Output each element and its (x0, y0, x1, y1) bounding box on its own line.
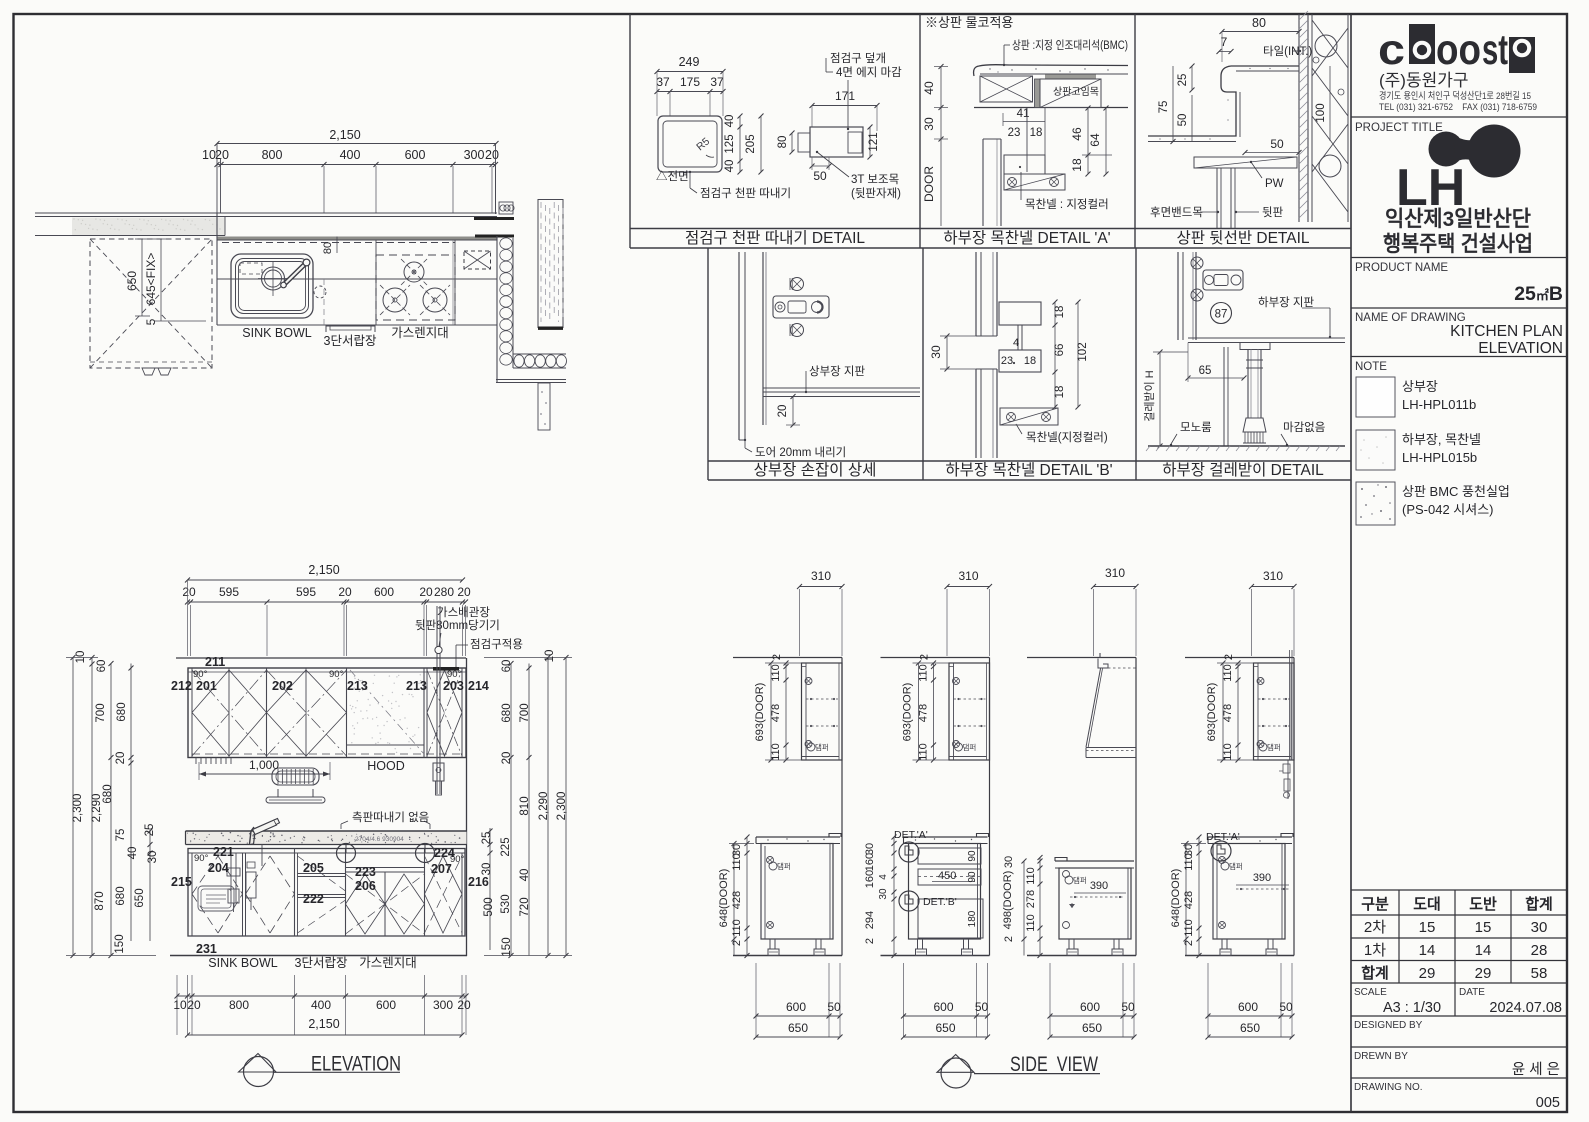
svg-text:110: 110 (770, 743, 782, 761)
svg-text:하부장 목찬넬 DETAIL 'B': 하부장 목찬넬 DETAIL 'B' (945, 461, 1112, 479)
svg-text:29: 29 (1419, 965, 1436, 982)
svg-text:700: 700 (519, 703, 531, 722)
svg-text:40: 40 (724, 115, 736, 128)
svg-text:680: 680 (102, 784, 114, 803)
svg-text:30: 30 (922, 117, 936, 131)
svg-text:7: 7 (1221, 35, 1228, 49)
svg-text:80: 80 (322, 242, 334, 254)
svg-text:2: 2 (919, 654, 931, 660)
svg-text:댐퍼: 댐퍼 (777, 861, 791, 871)
svg-text:700: 700 (95, 703, 107, 722)
svg-text:상판 BMC 풍천실업: 상판 BMC 풍천실업 (1402, 484, 1510, 499)
svg-text:50: 50 (813, 169, 827, 183)
svg-text:41: 41 (1017, 108, 1030, 120)
svg-text:14: 14 (1419, 942, 1436, 959)
svg-text:KITCHEN PLAN: KITCHEN PLAN (1450, 323, 1563, 340)
svg-text:걸레받이 H: 걸레받이 H (1143, 370, 1156, 422)
svg-text:LH-HPL015b: LH-HPL015b (1402, 450, 1477, 465)
svg-text:40: 40 (519, 869, 531, 882)
svg-text:합계: 합계 (1525, 896, 1553, 913)
svg-text:4: 4 (878, 874, 889, 880)
svg-text:댐퍼: 댐퍼 (1229, 861, 1243, 871)
svg-text:마감없음: 마감없음 (1283, 421, 1325, 434)
svg-text:SIDE VIEW: SIDE VIEW (1010, 1053, 1098, 1076)
svg-text:175: 175 (680, 75, 700, 89)
svg-text:46: 46 (1070, 127, 1084, 141)
svg-text:2: 2 (1003, 936, 1015, 942)
svg-text:300: 300 (464, 148, 485, 162)
svg-text:2: 2 (731, 940, 743, 946)
svg-text:2,290: 2,290 (538, 792, 550, 821)
svg-text:110: 110 (770, 664, 782, 682)
svg-text:680: 680 (115, 886, 127, 905)
svg-text:2704/4.6 930904: 2704/4.6 930904 (355, 836, 404, 843)
svg-text:23: 23 (1008, 127, 1021, 139)
svg-text:TEL (031) 321-6752 FAX (031: TEL (031) 321-6752 FAX (031) 718-6759 (1379, 102, 1537, 113)
svg-text:하부장, 목찬넬: 하부장, 목찬넬 (1402, 432, 1481, 447)
svg-text:하부장 걸레받이 DETAIL: 하부장 걸레받이 DETAIL (1162, 461, 1324, 479)
svg-text:23: 23 (1001, 355, 1013, 367)
svg-text:A3 : 1/30: A3 : 1/30 (1383, 1000, 1441, 1016)
svg-text:20: 20 (485, 148, 499, 162)
svg-text:80: 80 (1252, 16, 1266, 30)
svg-text:30: 30 (929, 345, 943, 359)
svg-text:29: 29 (1475, 965, 1492, 982)
svg-text:90°: 90° (329, 669, 344, 680)
svg-text:행복주택 건설사업: 행복주택 건설사업 (1383, 232, 1533, 256)
svg-text:530: 530 (500, 894, 512, 913)
svg-text:171: 171 (835, 89, 855, 103)
svg-text:249: 249 (679, 55, 700, 69)
svg-text:40: 40 (127, 847, 139, 860)
svg-text:50: 50 (975, 1000, 989, 1014)
svg-text:800: 800 (229, 998, 249, 1012)
svg-text:점검구 천판 따내기: 점검구 천판 따내기 (700, 186, 791, 200)
svg-text:DRAWING NO.: DRAWING NO. (1354, 1082, 1423, 1093)
svg-text:600: 600 (374, 585, 394, 599)
svg-text:18: 18 (1024, 355, 1036, 367)
svg-text:50: 50 (1270, 137, 1284, 151)
svg-text:PRODUCT NAME: PRODUCT NAME (1355, 262, 1448, 274)
svg-text:223: 223 (355, 865, 376, 879)
svg-text:2: 2 (864, 938, 876, 944)
svg-text:90: 90 (967, 871, 978, 883)
svg-text:SCALE: SCALE (1354, 987, 1387, 998)
svg-text:75: 75 (115, 829, 127, 842)
svg-text:110: 110 (1222, 664, 1234, 682)
svg-text:680: 680 (116, 702, 128, 721)
svg-text:20: 20 (457, 585, 471, 599)
svg-text:SINK BOWL: SINK BOWL (208, 956, 278, 970)
svg-text:500: 500 (483, 897, 495, 916)
svg-text:37: 37 (710, 75, 724, 89)
svg-text:125: 125 (724, 134, 736, 153)
svg-text:203: 203 (443, 679, 464, 693)
svg-text:경기도 용인시 처인구 덕성산단1로 28번길 15: 경기도 용인시 처인구 덕성산단1로 28번길 15 (1379, 90, 1531, 102)
svg-text:18: 18 (1030, 127, 1043, 139)
svg-text:600: 600 (405, 148, 426, 162)
svg-text:65: 65 (1199, 365, 1212, 377)
svg-text:st: st (1482, 26, 1508, 74)
svg-text:005: 005 (1536, 1095, 1560, 1111)
svg-text:400: 400 (311, 998, 331, 1012)
svg-text:DET.'B': DET.'B' (923, 896, 957, 908)
svg-text:310: 310 (811, 569, 831, 583)
svg-text:800: 800 (262, 148, 283, 162)
svg-text:점검구적용: 점검구적용 (470, 638, 523, 651)
svg-text:206: 206 (355, 879, 376, 893)
svg-text:294: 294 (864, 911, 876, 929)
svg-text:2024.07.08: 2024.07.08 (1489, 1000, 1562, 1016)
svg-text:693(DOOR): 693(DOOR) (902, 683, 914, 742)
svg-text:110: 110 (1025, 867, 1037, 885)
svg-text:DESIGNED BY: DESIGNED BY (1354, 1020, 1423, 1031)
svg-text:DREWN BY: DREWN BY (1354, 1051, 1408, 1062)
svg-text:221: 221 (213, 845, 234, 859)
svg-text:상판 뒷선반 DETAIL: 상판 뒷선반 DETAIL (1176, 229, 1309, 247)
svg-text:2,300: 2,300 (72, 794, 84, 823)
svg-text:20: 20 (187, 998, 201, 1012)
svg-text:390: 390 (1253, 872, 1271, 884)
svg-text:10: 10 (75, 651, 87, 664)
svg-text:상판 :지정 인조대리석(BMC): 상판 :지정 인조대리석(BMC) (1012, 39, 1128, 52)
svg-text:c: c (1378, 26, 1405, 74)
svg-text:222: 222 (303, 892, 324, 906)
svg-text:150: 150 (114, 934, 126, 953)
svg-text:310: 310 (958, 569, 978, 583)
svg-text:50: 50 (1121, 1000, 1135, 1014)
svg-text:10: 10 (202, 148, 216, 162)
svg-text:201: 201 (196, 679, 217, 693)
svg-text:도대: 도대 (1413, 896, 1441, 913)
svg-text:가스렌지대: 가스렌지대 (391, 326, 449, 340)
svg-text:215: 215 (171, 875, 192, 889)
svg-text:478: 478 (1222, 704, 1234, 722)
svg-text:600: 600 (786, 1000, 806, 1014)
svg-text:15: 15 (1475, 919, 1492, 936)
svg-text:4면 에지 마감: 4면 에지 마감 (836, 66, 902, 79)
svg-text:225: 225 (500, 837, 512, 856)
svg-text:NOTE: NOTE (1355, 361, 1387, 373)
svg-text:213: 213 (406, 679, 427, 693)
svg-text:650: 650 (788, 1021, 808, 1035)
svg-text:110: 110 (918, 664, 930, 682)
svg-text:90°: 90° (447, 669, 462, 680)
svg-text:110: 110 (1025, 914, 1037, 932)
svg-text:댐퍼: 댐퍼 (1267, 742, 1281, 752)
svg-text:합계: 합계 (1361, 965, 1389, 982)
svg-text:1차: 1차 (1364, 942, 1386, 959)
svg-text:댐퍼: 댐퍼 (1073, 875, 1087, 885)
svg-text:202: 202 (272, 679, 293, 693)
svg-text:40: 40 (724, 160, 736, 173)
svg-text:14: 14 (1475, 942, 1492, 959)
svg-text:후면밴드목: 후면밴드목 (1150, 206, 1203, 219)
svg-text:110: 110 (731, 919, 743, 937)
svg-text:90°: 90° (193, 669, 208, 680)
svg-text:390: 390 (1090, 880, 1108, 892)
svg-text:160: 160 (864, 853, 876, 871)
svg-text:ELEVATION: ELEVATION (1478, 340, 1563, 357)
svg-text:DOOR: DOOR (922, 166, 936, 202)
svg-text:2,150: 2,150 (329, 128, 360, 142)
svg-text:(PS-042 시셔스): (PS-042 시셔스) (1402, 502, 1494, 517)
svg-text:댐퍼: 댐퍼 (815, 742, 829, 752)
svg-text:810: 810 (519, 796, 531, 815)
svg-text:oo: oo (1436, 26, 1481, 74)
svg-text:점검구 천판 따내기 DETAIL: 점검구 천판 따내기 DETAIL (685, 229, 865, 247)
svg-text:2차: 2차 (1364, 919, 1386, 936)
svg-text:상부장: 상부장 (1402, 379, 1438, 394)
svg-text:3T 보조목: 3T 보조목 (851, 173, 899, 186)
svg-text:HOOD: HOOD (367, 759, 405, 773)
svg-text:※상판 물코적용: ※상판 물코적용 (925, 15, 1013, 30)
svg-text:64: 64 (1088, 133, 1102, 147)
svg-text:310: 310 (1105, 566, 1125, 580)
svg-text:693(DOOR): 693(DOOR) (754, 683, 766, 742)
svg-text:2,300: 2,300 (556, 792, 568, 821)
svg-text:15: 15 (1419, 919, 1436, 936)
svg-text:207: 207 (431, 862, 452, 876)
svg-text:278: 278 (1025, 890, 1037, 908)
svg-text:720: 720 (519, 897, 531, 916)
svg-text:20: 20 (338, 585, 352, 599)
svg-text:216: 216 (468, 875, 489, 889)
svg-text:18: 18 (1054, 386, 1066, 399)
svg-text:648(DOOR): 648(DOOR) (718, 869, 730, 928)
svg-text:목찬넬(지정컬러): 목찬넬(지정컬러) (1026, 430, 1108, 444)
svg-text:58: 58 (1531, 965, 1548, 982)
svg-text:30: 30 (481, 863, 493, 876)
svg-text:478: 478 (770, 704, 782, 722)
svg-text:110: 110 (1183, 919, 1195, 937)
svg-text:18: 18 (1054, 306, 1066, 319)
svg-text:110: 110 (918, 743, 930, 761)
svg-text:뒷판: 뒷판 (1262, 206, 1284, 219)
svg-text:댐퍼: 댐퍼 (963, 742, 977, 752)
svg-text:3단서랍장: 3단서랍장 (324, 334, 377, 348)
svg-text:(뒷판자재): (뒷판자재) (851, 187, 901, 200)
svg-text:80: 80 (777, 136, 789, 149)
svg-text:90°: 90° (194, 853, 209, 864)
svg-text:하부장 목찬넬 DETAIL 'A': 하부장 목찬넬 DETAIL 'A' (943, 229, 1110, 247)
svg-text:231: 231 (196, 942, 217, 956)
svg-text:50: 50 (1177, 114, 1189, 127)
svg-text:60: 60 (96, 660, 108, 673)
svg-text:도반: 도반 (1469, 896, 1497, 913)
svg-text:90: 90 (967, 850, 978, 862)
svg-text:2: 2 (771, 654, 783, 660)
svg-text:600: 600 (1080, 1000, 1100, 1014)
svg-text:680: 680 (501, 703, 513, 722)
svg-text:648(DOOR): 648(DOOR) (1170, 869, 1182, 928)
svg-text:익산제3일반산단: 익산제3일반산단 (1385, 207, 1531, 231)
svg-text:650: 650 (935, 1021, 955, 1035)
svg-text:2: 2 (1223, 654, 1235, 660)
svg-text:5: 5 (144, 318, 158, 325)
svg-text:310: 310 (1263, 569, 1283, 583)
svg-text:211: 211 (205, 655, 225, 669)
svg-text:428: 428 (731, 891, 743, 909)
svg-text:상부장 지판: 상부장 지판 (809, 365, 866, 378)
svg-text:110: 110 (1222, 743, 1234, 761)
svg-text:타일(INT.): 타일(INT.) (1263, 44, 1312, 58)
svg-text:30: 30 (1531, 919, 1548, 936)
svg-text:LH-HPL011b: LH-HPL011b (1402, 397, 1476, 412)
svg-text:180: 180 (967, 910, 978, 927)
svg-text:측판따내기 없음: 측판따내기 없음 (352, 811, 429, 824)
svg-text:25: 25 (144, 824, 156, 837)
svg-text:650: 650 (125, 271, 139, 291)
svg-text:204: 204 (208, 861, 229, 875)
svg-text:300: 300 (433, 998, 453, 1012)
svg-text:25: 25 (1177, 74, 1189, 87)
svg-text:30: 30 (878, 888, 889, 900)
svg-text:100: 100 (1315, 103, 1327, 122)
svg-text:20: 20 (777, 405, 789, 418)
svg-text:205: 205 (303, 861, 324, 875)
svg-text:121: 121 (868, 132, 880, 151)
svg-text:645<FIX>: 645<FIX> (144, 253, 158, 306)
svg-text:20: 20 (115, 752, 127, 765)
svg-text:20: 20 (182, 585, 196, 599)
svg-text:498(DOOR): 498(DOOR) (1002, 871, 1014, 930)
svg-text:하부장 지판: 하부장 지판 (1258, 295, 1315, 309)
svg-text:600: 600 (933, 1000, 953, 1014)
svg-text:650: 650 (134, 888, 146, 907)
svg-text:870: 870 (94, 891, 106, 910)
svg-text:25: 25 (481, 832, 493, 845)
svg-text:1,000: 1,000 (249, 758, 279, 772)
svg-text:428: 428 (1183, 891, 1195, 909)
svg-text:50: 50 (827, 1000, 841, 1014)
svg-text:점검구 덮개: 점검구 덮개 (830, 52, 886, 65)
svg-text:2,150: 2,150 (308, 1017, 339, 1031)
svg-text:87: 87 (1215, 309, 1228, 321)
svg-text:60: 60 (501, 660, 513, 673)
svg-text:20: 20 (501, 752, 513, 765)
svg-text:212: 212 (171, 679, 192, 693)
svg-text:66: 66 (1054, 344, 1066, 357)
svg-text:뒷판80mm당기기: 뒷판80mm당기기 (415, 619, 500, 632)
svg-text:213: 213 (347, 679, 368, 693)
svg-text:20: 20 (457, 998, 471, 1012)
svg-text:102: 102 (1077, 342, 1089, 361)
svg-text:10: 10 (173, 998, 187, 1012)
svg-text:28: 28 (1531, 942, 1548, 959)
svg-text:595: 595 (219, 585, 239, 599)
svg-text:PROJECT TITLE: PROJECT TITLE (1355, 122, 1443, 134)
svg-text:(주)동원가구: (주)동원가구 (1379, 71, 1469, 90)
svg-text:상판고임목: 상판고임목 (1053, 85, 1099, 98)
svg-text:214: 214 (468, 679, 489, 693)
svg-text:2,150: 2,150 (308, 563, 339, 577)
svg-text:650: 650 (1082, 1021, 1102, 1035)
svg-text:3단서랍장: 3단서랍장 (295, 956, 348, 970)
svg-text:4: 4 (1013, 337, 1019, 349)
svg-text:18: 18 (1070, 158, 1084, 172)
svg-text:DET.'A': DET.'A' (894, 829, 928, 841)
svg-text:75: 75 (1158, 101, 1170, 114)
svg-text:693(DOOR): 693(DOOR) (1206, 683, 1218, 742)
svg-text:600: 600 (1238, 1000, 1258, 1014)
svg-text:목찬넬 : 지정컬러: 목찬넬 : 지정컬러 (1025, 197, 1109, 211)
svg-text:PW: PW (1265, 178, 1284, 190)
svg-text:20: 20 (419, 585, 433, 599)
svg-text:110: 110 (1183, 853, 1195, 871)
svg-text:윤 세 은: 윤 세 은 (1512, 1061, 1560, 1078)
svg-text:50: 50 (1279, 1000, 1293, 1014)
svg-text:40: 40 (922, 81, 936, 95)
svg-text:595: 595 (296, 585, 316, 599)
svg-text:△전면: △전면 (656, 170, 689, 183)
svg-text:205: 205 (745, 134, 757, 153)
svg-text:150: 150 (501, 937, 513, 956)
svg-text:30: 30 (147, 851, 159, 864)
svg-text:상부장 손잡이 상세: 상부장 손잡이 상세 (754, 461, 877, 479)
svg-text:10: 10 (544, 650, 556, 663)
svg-text:SINK BOWL: SINK BOWL (242, 326, 312, 340)
svg-text:37: 37 (656, 75, 670, 89)
svg-text:30: 30 (1003, 856, 1015, 868)
svg-text:400: 400 (340, 148, 361, 162)
svg-text:110: 110 (731, 853, 743, 871)
svg-text:DATE: DATE (1459, 987, 1485, 998)
svg-text:600: 600 (376, 998, 396, 1012)
svg-text:가스렌지대: 가스렌지대 (359, 956, 417, 970)
svg-text:2: 2 (1183, 940, 1195, 946)
svg-text:도어 20mm 내리기: 도어 20mm 내리기 (755, 446, 846, 459)
svg-text:가스배관장: 가스배관장 (437, 606, 490, 619)
svg-text:650: 650 (1240, 1021, 1260, 1035)
svg-text:160: 160 (864, 870, 876, 888)
svg-text:478: 478 (918, 704, 930, 722)
svg-text:450: 450 (938, 870, 956, 882)
svg-text:모노룸: 모노룸 (1180, 421, 1212, 434)
svg-text:90°: 90° (450, 854, 465, 865)
svg-text:구분: 구분 (1361, 896, 1389, 913)
svg-text:280: 280 (434, 585, 454, 599)
